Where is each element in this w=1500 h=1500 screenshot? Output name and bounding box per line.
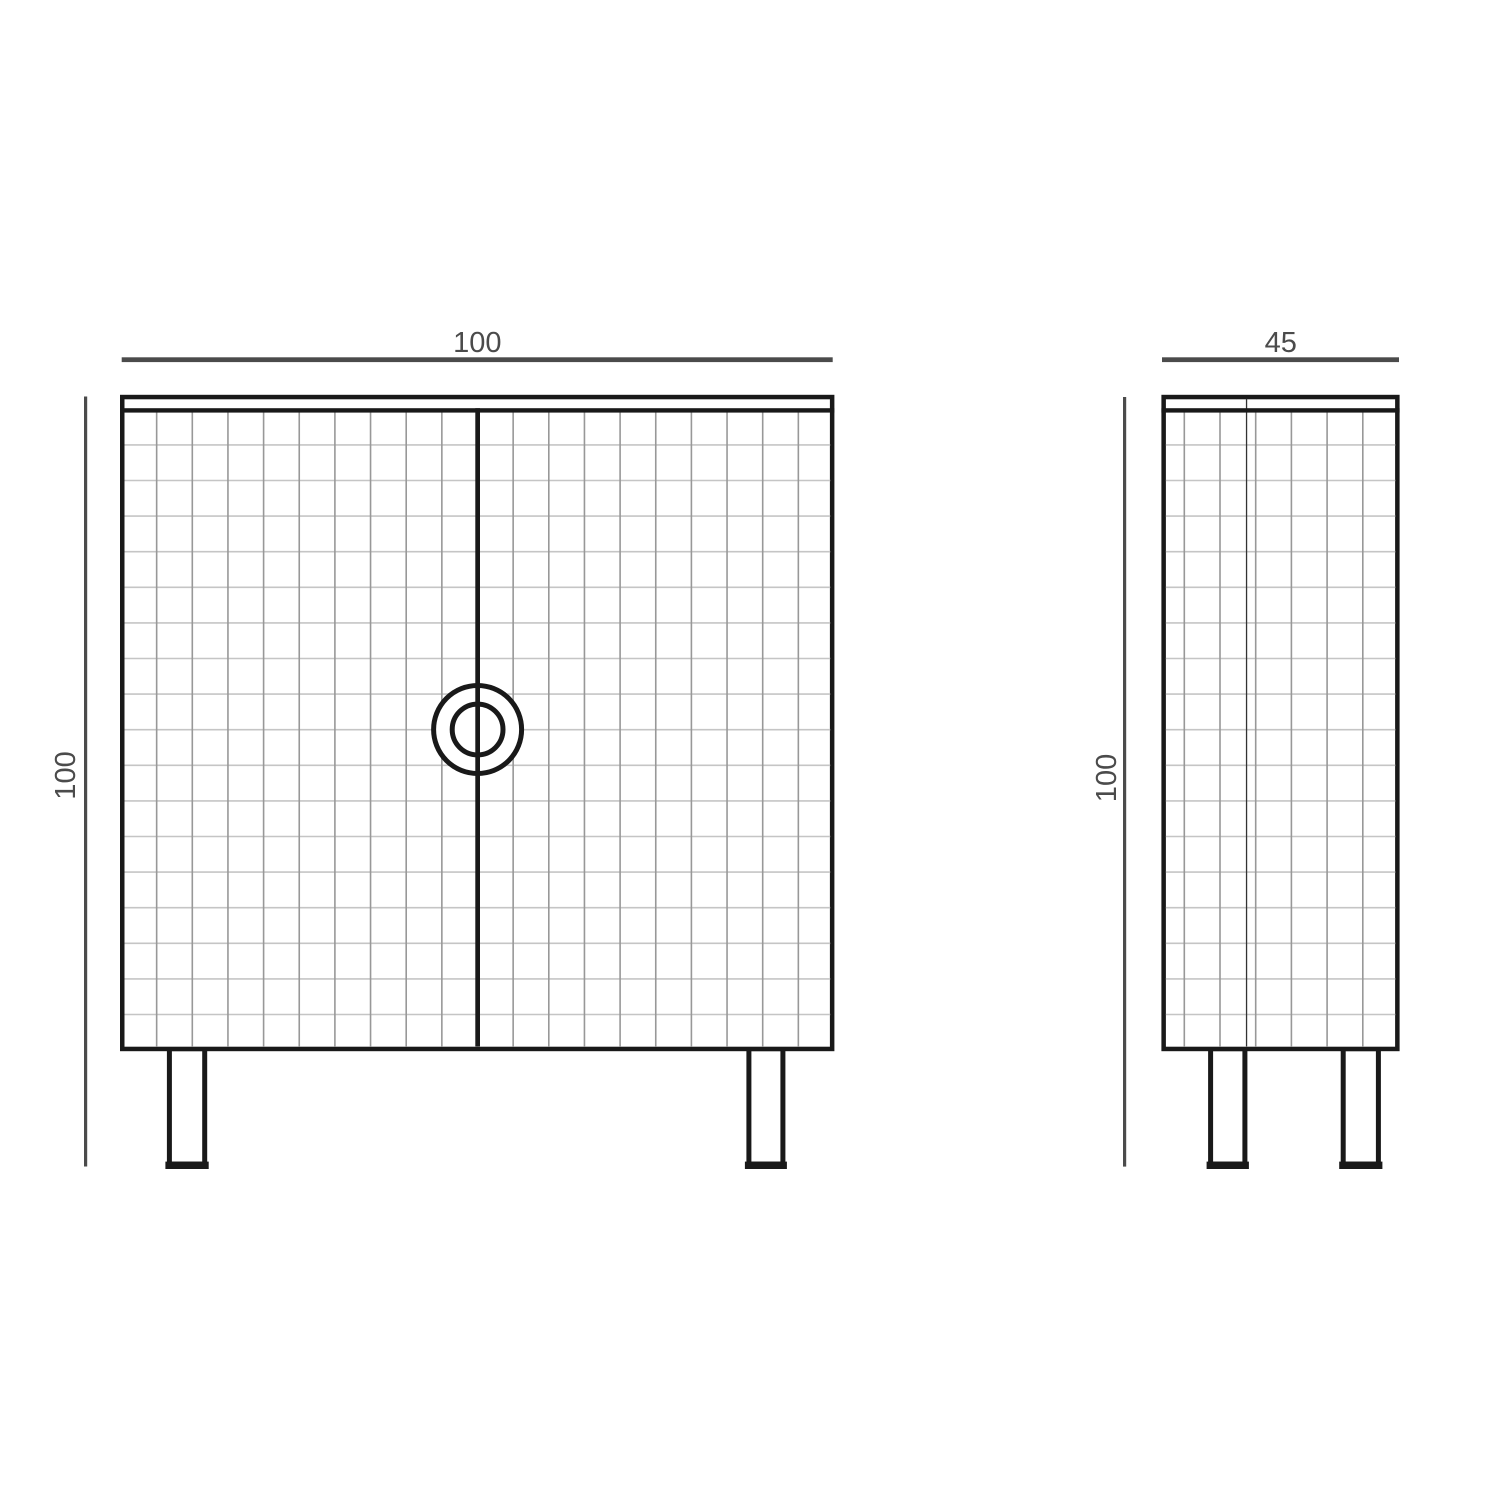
svg-text:100: 100 <box>1091 754 1123 802</box>
svg-text:45: 45 <box>1265 327 1297 359</box>
svg-text:100: 100 <box>50 751 82 799</box>
svg-text:100: 100 <box>453 327 501 359</box>
